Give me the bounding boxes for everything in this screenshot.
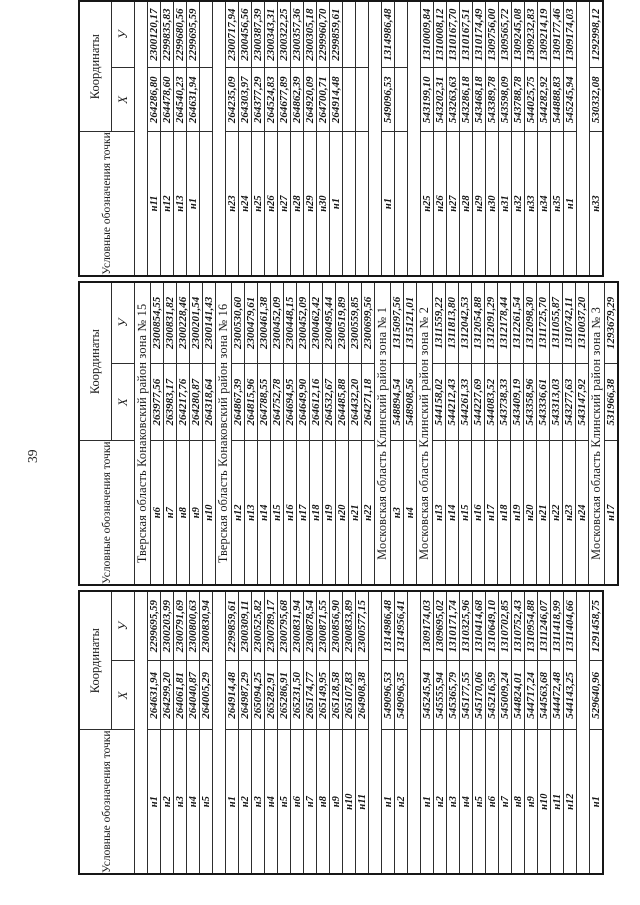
coord-x-cell: 544888,83 bbox=[551, 68, 564, 132]
point-id-cell: н29 bbox=[473, 132, 486, 276]
table-row: н6263977,562300854,55 bbox=[151, 282, 164, 585]
coord-x-cell: 543788,78 bbox=[512, 68, 525, 132]
table-row: н26264524,832300343,31 bbox=[265, 1, 278, 276]
coord-x-cell: 545170,06 bbox=[473, 661, 486, 730]
coord-x-cell: 264478,60 bbox=[161, 68, 174, 132]
table-row: н22543313,031311055,87 bbox=[550, 282, 563, 585]
point-id-cell: н1 bbox=[590, 730, 604, 874]
coord-x-cell: 544143,25 bbox=[564, 661, 577, 730]
table-row: н8544824,011310752,43 bbox=[512, 591, 525, 874]
coord-y-cell bbox=[356, 1, 369, 68]
section-title-row: Московская область Клинский район зона №… bbox=[375, 282, 391, 585]
coord-y-cell: 1312042,53 bbox=[459, 282, 472, 364]
coord-y-cell: 2299835,83 bbox=[161, 1, 174, 68]
coord-y-cell: 1315097,56 bbox=[391, 282, 404, 364]
coord-x-cell: 264677,89 bbox=[278, 68, 291, 132]
point-id-cell: н4 bbox=[187, 730, 200, 874]
coord-y-cell: 1310742,11 bbox=[563, 282, 576, 364]
point-id-cell: н6 bbox=[151, 441, 164, 585]
coord-x-cell: 264286,80 bbox=[148, 68, 161, 132]
coord-y-cell: 1310171,74 bbox=[447, 591, 460, 661]
section-title bbox=[213, 1, 226, 276]
coord-y-cell: 1310649,10 bbox=[486, 591, 499, 661]
table-row: н19264532,672300495,44 bbox=[323, 282, 336, 585]
table-row: н24264303,972300456,56 bbox=[239, 1, 252, 276]
coord-y-cell: 2299859,61 bbox=[330, 1, 343, 68]
point-id-cell: н14 bbox=[258, 441, 271, 585]
coord-x-cell: 545245,94 bbox=[421, 661, 434, 730]
coord-y-cell: 1311418,99 bbox=[551, 591, 564, 661]
section-title: Московская область Клинский район зона №… bbox=[417, 282, 433, 585]
point-id-cell: н2 bbox=[434, 730, 447, 874]
table-row: н4545177,551310325,96 bbox=[460, 591, 473, 874]
coord-x-cell: 264532,67 bbox=[323, 363, 336, 441]
coord-x-cell: 264235,09 bbox=[226, 68, 239, 132]
coords-table-group-3: Условные обозначения точкиКоординатыXУн1… bbox=[78, 0, 604, 277]
coord-x-cell: 264862,39 bbox=[291, 68, 304, 132]
coord-x-cell bbox=[200, 68, 213, 132]
section-title: Тверская область Конаковский район зона … bbox=[216, 282, 232, 585]
coord-x-cell: 263977,56 bbox=[151, 363, 164, 441]
coord-x-cell: 265231,50 bbox=[291, 661, 304, 730]
coord-x-cell: 265282,91 bbox=[265, 661, 278, 730]
section-title-row bbox=[135, 591, 148, 874]
table-row: н12544143,251311404,66 bbox=[564, 591, 577, 874]
section-title bbox=[135, 591, 148, 874]
section-title: Тверская область Конаковский район зона … bbox=[135, 282, 151, 585]
table-row: н27264677,892300322,25 bbox=[278, 1, 291, 276]
coord-x-cell: 543286,18 bbox=[460, 68, 473, 132]
table-row: н3265094,252300525,82 bbox=[252, 591, 265, 874]
table-row: н30264700,712299960,70 bbox=[317, 1, 330, 276]
coord-y-cell: 2300878,54 bbox=[304, 591, 317, 661]
point-id-cell: н4 bbox=[265, 730, 278, 874]
coord-y-cell: 2300577,15 bbox=[356, 591, 369, 661]
coord-y-cell: 1314986,48 bbox=[382, 591, 395, 661]
coord-y-cell: 1314956,41 bbox=[395, 591, 408, 661]
coord-x-cell: 543147,92 bbox=[576, 363, 589, 441]
table-row: н7263983,172300831,82 bbox=[164, 282, 177, 585]
table-row: н26543202,311310008,12 bbox=[434, 1, 447, 276]
point-id-cell: н10 bbox=[538, 730, 551, 874]
coord-y-cell: 2300519,89 bbox=[336, 282, 349, 364]
table-row bbox=[356, 1, 369, 276]
point-id-cell: н18 bbox=[310, 441, 323, 585]
table-row: н18264612,162300462,42 bbox=[310, 282, 323, 585]
coord-y-cell: 2300120,17 bbox=[148, 1, 161, 68]
coord-x-cell: 264540,23 bbox=[174, 68, 187, 132]
coord-x-cell: 543277,63 bbox=[563, 363, 576, 441]
point-id-cell: н5 bbox=[278, 730, 291, 874]
rotated-sheet: 39 Условные обозначения точкиКоординатыX… bbox=[0, 0, 640, 905]
coord-y-cell: 1309174,03 bbox=[421, 591, 434, 661]
point-id-cell: н30 bbox=[317, 132, 330, 276]
coord-y-cell: 2300791,69 bbox=[174, 591, 187, 661]
coord-y-cell: 1310009,84 bbox=[421, 1, 434, 68]
coord-y-cell: 1309756,00 bbox=[486, 1, 499, 68]
coord-x-cell: 264612,16 bbox=[310, 363, 323, 441]
coord-x-cell: 264318,64 bbox=[203, 363, 216, 441]
coord-y-cell: 2300387,39 bbox=[252, 1, 265, 68]
coord-x-cell bbox=[356, 68, 369, 132]
coord-x-cell: 264752,78 bbox=[271, 363, 284, 441]
header-point-designation: Условные обозначения точки bbox=[79, 441, 135, 585]
point-id-cell: н5 bbox=[473, 730, 486, 874]
table-row: н13544158,021311559,22 bbox=[433, 282, 446, 585]
coord-x-cell: 264815,96 bbox=[245, 363, 258, 441]
coord-y-cell: 2300479,61 bbox=[245, 282, 258, 364]
section-title bbox=[135, 1, 148, 276]
point-id-cell: н11 bbox=[148, 132, 161, 276]
page-number: 39 bbox=[25, 450, 41, 464]
coord-y-cell: 1310167,70 bbox=[447, 1, 460, 68]
table-row: н9544717,241310954,88 bbox=[525, 591, 538, 874]
header-y: У bbox=[112, 591, 135, 661]
point-id-cell: н8 bbox=[512, 730, 525, 874]
table-row: н12264867,392300530,60 bbox=[232, 282, 245, 585]
point-id-cell: н10 bbox=[343, 730, 356, 874]
point-id-cell: н9 bbox=[525, 730, 538, 874]
coord-x-cell: 544025,75 bbox=[525, 68, 538, 132]
header-x: X bbox=[112, 363, 135, 441]
coord-y-cell: 2300717,94 bbox=[226, 1, 239, 68]
table-row: н1264914,482299859,61 bbox=[226, 591, 239, 874]
point-id-cell: н25 bbox=[252, 132, 265, 276]
coord-y-cell: 1311404,66 bbox=[564, 591, 577, 661]
table-row: н1529640,961291458,75 bbox=[590, 591, 604, 874]
coord-x-cell: 264631,94 bbox=[187, 68, 200, 132]
coord-y-cell: 2300530,60 bbox=[232, 282, 245, 364]
table-row: н10265107,832300833,89 bbox=[343, 591, 356, 874]
point-id-cell: н19 bbox=[323, 441, 336, 585]
point-id-cell: н1 bbox=[382, 132, 395, 276]
section-title bbox=[369, 1, 382, 276]
section-title bbox=[408, 591, 421, 874]
coord-y-cell: 1310954,88 bbox=[525, 591, 538, 661]
section-title bbox=[369, 591, 382, 874]
point-id-cell: н30 bbox=[486, 132, 499, 276]
coord-y-cell: 2300831,94 bbox=[291, 591, 304, 661]
table-row: н8264217,762300228,46 bbox=[177, 282, 190, 585]
coordinates-table: Условные обозначения точкиКоординатыXУн1… bbox=[78, 0, 619, 875]
coord-x-cell: 543409,19 bbox=[511, 363, 524, 441]
point-id-cell bbox=[200, 132, 213, 276]
table-row: н4264040,872300800,63 bbox=[187, 591, 200, 874]
point-id-cell: н3 bbox=[447, 730, 460, 874]
point-id-cell: н20 bbox=[524, 441, 537, 585]
coord-y-cell: 1310414,68 bbox=[473, 591, 486, 661]
coord-x-cell: 548894,54 bbox=[391, 363, 404, 441]
coord-x-cell: 264299,20 bbox=[161, 661, 174, 730]
coord-y-cell: 2300871,55 bbox=[317, 591, 330, 661]
point-id-cell: н22 bbox=[362, 441, 375, 585]
table-row: н29264920,092300305,18 bbox=[304, 1, 317, 276]
coord-y-cell: 2300141,43 bbox=[203, 282, 216, 364]
coord-x-cell: 544472,48 bbox=[551, 661, 564, 730]
point-id-cell: н1 bbox=[148, 730, 161, 874]
coord-x-cell: 264432,20 bbox=[349, 363, 362, 441]
point-id-cell: н28 bbox=[291, 132, 304, 276]
section-title bbox=[213, 591, 226, 874]
section-title-row: Московская область Клинский район зона №… bbox=[417, 282, 433, 585]
coord-y-cell: 2300856,90 bbox=[330, 591, 343, 661]
coord-x-cell: 544824,01 bbox=[512, 661, 525, 730]
table-row: н23543277,631310742,11 bbox=[563, 282, 576, 585]
table-row: н16264694,952300448,15 bbox=[284, 282, 297, 585]
table-row: н7545009,241310702,85 bbox=[499, 591, 512, 874]
coord-y-cell: 2300830,94 bbox=[200, 591, 213, 661]
coord-y-cell: 2300789,17 bbox=[265, 591, 278, 661]
table-row bbox=[200, 1, 213, 276]
point-id-cell: н8 bbox=[177, 441, 190, 585]
coord-x-cell: 543389,78 bbox=[486, 68, 499, 132]
coord-y-cell: 1311246,07 bbox=[538, 591, 551, 661]
point-id-cell: н32 bbox=[512, 132, 525, 276]
section-title-row bbox=[577, 591, 590, 874]
point-id-cell: н7 bbox=[164, 441, 177, 585]
coord-x-cell: 265286,91 bbox=[278, 661, 291, 730]
section-title-row bbox=[369, 1, 382, 276]
table-row: н1549096,531314986,48 bbox=[382, 1, 395, 276]
table-row: н21264432,202300559,85 bbox=[349, 282, 362, 585]
coord-x-cell: 545216,59 bbox=[486, 661, 499, 730]
table-row: н2264987,292300309,11 bbox=[239, 591, 252, 874]
table-row: н33544025,751309232,83 bbox=[525, 1, 538, 276]
section-title-row bbox=[213, 591, 226, 874]
coords-table-group-1: Условные обозначения точкиКоординатыXУн1… bbox=[78, 590, 604, 875]
coord-y-cell: 2300305,18 bbox=[304, 1, 317, 68]
table-row: н6265231,502300831,94 bbox=[291, 591, 304, 874]
coord-x-cell: 545365,79 bbox=[447, 661, 460, 730]
coord-x-cell: 531966,38 bbox=[605, 363, 619, 441]
coord-y-cell: 2300831,82 bbox=[164, 282, 177, 364]
coord-y-cell: 1309695,02 bbox=[434, 591, 447, 661]
table-row: н15544261,331312042,53 bbox=[459, 282, 472, 585]
point-id-cell: н27 bbox=[278, 132, 291, 276]
header-point-designation: Условные обозначения точки bbox=[79, 730, 135, 874]
header-x: X bbox=[112, 68, 135, 132]
point-id-cell: н19 bbox=[511, 441, 524, 585]
coord-y-cell: 1312261,54 bbox=[511, 282, 524, 364]
coord-x-cell: 264280,87 bbox=[190, 363, 203, 441]
coord-y-cell: 1309232,83 bbox=[525, 1, 538, 68]
section-title-row bbox=[408, 591, 421, 874]
coord-y-cell: 2300699,56 bbox=[362, 282, 375, 364]
coord-y-cell: 1310325,96 bbox=[460, 591, 473, 661]
table-row: н35544888,831309177,46 bbox=[551, 1, 564, 276]
point-id-cell: н2 bbox=[161, 730, 174, 874]
point-id-cell: н17 bbox=[297, 441, 310, 585]
coord-x-cell: 263983,17 bbox=[164, 363, 177, 441]
coord-x-cell: 544261,33 bbox=[459, 363, 472, 441]
coord-y-cell: 2300452,09 bbox=[271, 282, 284, 364]
table-row: н1545245,941309174,03 bbox=[564, 1, 577, 276]
table-row: н17531966,381293679,29 bbox=[605, 282, 619, 585]
coord-y-cell: 2300456,56 bbox=[239, 1, 252, 68]
table-row: н18543738,331312178,44 bbox=[498, 282, 511, 585]
table-row: н15264752,782300452,09 bbox=[271, 282, 284, 585]
point-id-cell: н33 bbox=[525, 132, 538, 276]
point-id-cell: н26 bbox=[434, 132, 447, 276]
point-id-cell: н31 bbox=[499, 132, 512, 276]
point-id-cell: н34 bbox=[538, 132, 551, 276]
section-title-row bbox=[213, 1, 226, 276]
coord-y-cell: 2299695,59 bbox=[187, 1, 200, 68]
coord-x-cell: 543598,09 bbox=[499, 68, 512, 132]
section-title-row bbox=[135, 1, 148, 276]
coord-y-cell: 1311055,87 bbox=[550, 282, 563, 364]
point-id-cell: н12 bbox=[232, 441, 245, 585]
table-row: н29543468,181310174,49 bbox=[473, 1, 486, 276]
section-title: Московская область Клинский район зона №… bbox=[375, 282, 391, 585]
table-row: н23264235,092300717,94 bbox=[226, 1, 239, 276]
table-row: н20264485,882300519,89 bbox=[336, 282, 349, 585]
coord-x-cell bbox=[343, 68, 356, 132]
coord-x-cell: 549096,35 bbox=[395, 661, 408, 730]
point-id-cell: н20 bbox=[336, 441, 349, 585]
coord-x-cell: 549096,53 bbox=[382, 68, 395, 132]
point-id-cell: н1 bbox=[382, 730, 395, 874]
coord-y-cell: 1311559,22 bbox=[433, 282, 446, 364]
table-row: н20543358,961312098,30 bbox=[524, 282, 537, 585]
table-row: н3264061,812300791,69 bbox=[174, 591, 187, 874]
coord-y-cell bbox=[343, 1, 356, 68]
point-id-cell bbox=[395, 132, 408, 276]
coord-x-cell: 264303,97 bbox=[239, 68, 252, 132]
point-id-cell: н13 bbox=[245, 441, 258, 585]
coord-x-cell: 543263,63 bbox=[447, 68, 460, 132]
coord-x-cell: 264005,29 bbox=[200, 661, 213, 730]
table-row: н10264318,642300141,43 bbox=[203, 282, 216, 585]
coord-y-cell: 2300309,11 bbox=[239, 591, 252, 661]
point-id-cell: н4 bbox=[404, 441, 417, 585]
point-id-cell: н12 bbox=[161, 132, 174, 276]
coord-x-cell: 264524,83 bbox=[265, 68, 278, 132]
table-row: н7265174,772300878,54 bbox=[304, 591, 317, 874]
table-row: н11544472,481311418,99 bbox=[551, 591, 564, 874]
point-id-cell: н2 bbox=[239, 730, 252, 874]
coord-y-cell: 2300795,68 bbox=[278, 591, 291, 661]
coord-x-cell: 264908,38 bbox=[356, 661, 369, 730]
table-row: н34544282,921309214,19 bbox=[538, 1, 551, 276]
point-id-cell: н5 bbox=[200, 730, 213, 874]
point-id-cell: н23 bbox=[563, 441, 576, 585]
coord-y-cell: 1309245,08 bbox=[512, 1, 525, 68]
coord-x-cell: 545555,94 bbox=[434, 661, 447, 730]
point-id-cell bbox=[343, 132, 356, 276]
coord-x-cell: 529640,96 bbox=[590, 661, 604, 730]
point-id-cell: н4 bbox=[460, 730, 473, 874]
header-point-designation: Условные обозначения точки bbox=[79, 132, 135, 276]
coord-y-cell: 1310008,12 bbox=[434, 1, 447, 68]
point-id-cell: н33 bbox=[590, 132, 604, 276]
section-title: Московская область Клинский район зона №… bbox=[589, 282, 605, 585]
point-id-cell: н6 bbox=[291, 730, 304, 874]
table-row: н17544083,521312091,29 bbox=[485, 282, 498, 585]
table-row: н25543199,101310009,84 bbox=[421, 1, 434, 276]
point-id-cell: н16 bbox=[284, 441, 297, 585]
point-id-cell: н27 bbox=[447, 132, 460, 276]
section-title-row: Тверская область Конаковский район зона … bbox=[135, 282, 151, 585]
coord-x-cell: 264914,48 bbox=[226, 661, 239, 730]
coord-x-cell: 530332,08 bbox=[590, 68, 604, 132]
coord-x-cell: 544717,24 bbox=[525, 661, 538, 730]
table-row: н4265282,912300789,17 bbox=[265, 591, 278, 874]
point-id-cell: н15 bbox=[459, 441, 472, 585]
table-row: н28543286,181310167,51 bbox=[460, 1, 473, 276]
coord-x-cell: 264271,18 bbox=[362, 363, 375, 441]
coord-x-cell: 543468,18 bbox=[473, 68, 486, 132]
coord-y-cell: 1291458,75 bbox=[590, 591, 604, 661]
point-id-cell: н1 bbox=[330, 132, 343, 276]
point-id-cell: н35 bbox=[551, 132, 564, 276]
table-row: н33530332,081292998,12 bbox=[590, 1, 604, 276]
point-id-cell: н6 bbox=[486, 730, 499, 874]
coord-x-cell: 544227,69 bbox=[472, 363, 485, 441]
table-row: н3548894,541315097,56 bbox=[391, 282, 404, 585]
coord-y-cell: 1311813,80 bbox=[446, 282, 459, 364]
coord-x-cell: 544212,43 bbox=[446, 363, 459, 441]
table-row: н8265149,952300871,55 bbox=[317, 591, 330, 874]
coord-y-cell: 1314986,48 bbox=[382, 1, 395, 68]
coord-y-cell: 1310167,51 bbox=[460, 1, 473, 68]
coord-y-cell bbox=[200, 1, 213, 68]
table-row: н24543147,921310037,20 bbox=[576, 282, 589, 585]
point-id-cell: н21 bbox=[349, 441, 362, 585]
coord-y-cell: 2300228,46 bbox=[177, 282, 190, 364]
coord-x-cell: 264914,48 bbox=[330, 68, 343, 132]
point-id-cell: н11 bbox=[551, 730, 564, 874]
coord-x-cell: 543202,31 bbox=[434, 68, 447, 132]
section-title bbox=[577, 1, 590, 276]
coord-x-cell: 543313,03 bbox=[550, 363, 563, 441]
table-row: н1264631,942299695,59 bbox=[148, 591, 161, 874]
point-id-cell: н1 bbox=[421, 730, 434, 874]
point-id-cell: н10 bbox=[203, 441, 216, 585]
coord-x-cell: 264040,87 bbox=[187, 661, 200, 730]
point-id-cell: н26 bbox=[265, 132, 278, 276]
point-id-cell: н24 bbox=[239, 132, 252, 276]
coord-x-cell: 264700,71 bbox=[317, 68, 330, 132]
table-row: н1264631,942299695,59 bbox=[187, 1, 200, 276]
coord-y-cell: 2300343,31 bbox=[265, 1, 278, 68]
coord-y-cell: 2300462,42 bbox=[310, 282, 323, 364]
coord-y-cell: 1312091,29 bbox=[485, 282, 498, 364]
table-row: н3545365,791310171,74 bbox=[447, 591, 460, 874]
point-id-cell: н23 bbox=[226, 132, 239, 276]
coord-x-cell: 545245,94 bbox=[564, 68, 577, 132]
coord-x-cell: 265094,25 bbox=[252, 661, 265, 730]
point-id-cell: н17 bbox=[485, 441, 498, 585]
table-row: н5264005,292300830,94 bbox=[200, 591, 213, 874]
coord-y-cell: 2299960,70 bbox=[317, 1, 330, 68]
point-id-cell: н3 bbox=[391, 441, 404, 585]
point-id-cell: н1 bbox=[187, 132, 200, 276]
table-row: н9265128,582300856,90 bbox=[330, 591, 343, 874]
coord-x-cell: 264987,29 bbox=[239, 661, 252, 730]
point-id-cell: н1 bbox=[226, 730, 239, 874]
coord-x-cell: 264217,76 bbox=[177, 363, 190, 441]
coord-y-cell: 2300201,54 bbox=[190, 282, 203, 364]
table-row: н2549096,351314956,41 bbox=[395, 591, 408, 874]
coord-y-cell: 2300800,63 bbox=[187, 591, 200, 661]
coord-y-cell: 2299859,61 bbox=[226, 591, 239, 661]
section-title-row bbox=[369, 591, 382, 874]
table-row: н4548908,561315121,01 bbox=[404, 282, 417, 585]
coord-x-cell: 543199,10 bbox=[421, 68, 434, 132]
coord-x-cell: 543738,33 bbox=[498, 363, 511, 441]
coord-x-cell: 264485,88 bbox=[336, 363, 349, 441]
